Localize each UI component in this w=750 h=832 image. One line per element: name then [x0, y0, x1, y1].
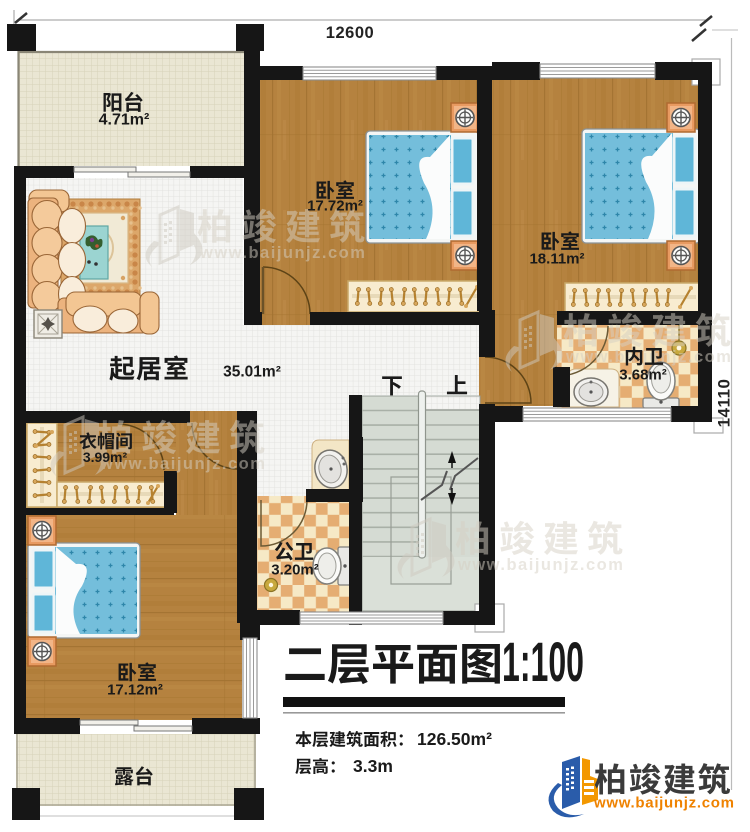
svg-text:4.71m²: 4.71m² — [99, 112, 150, 129]
svg-text:17.72m²: 17.72m² — [307, 198, 363, 215]
svg-text:3.99m²: 3.99m² — [83, 449, 128, 465]
svg-text:126.50m²: 126.50m² — [417, 729, 492, 749]
svg-text:www.baijunjz.com: www.baijunjz.com — [593, 795, 735, 812]
svg-text:www.baijunjz.com: www.baijunjz.com — [457, 556, 624, 574]
svg-text:35.01m²: 35.01m² — [223, 364, 281, 381]
svg-text:3.20m²: 3.20m² — [271, 562, 319, 579]
svg-text:1:100: 1:100 — [502, 630, 584, 693]
svg-text:17.12m²: 17.12m² — [107, 682, 163, 699]
svg-text:18.11m²: 18.11m² — [529, 251, 584, 268]
svg-text:14110: 14110 — [715, 379, 734, 428]
svg-text:3.68m²: 3.68m² — [619, 367, 667, 384]
svg-text:12600: 12600 — [326, 24, 374, 42]
svg-text:3.3m: 3.3m — [353, 756, 393, 776]
svg-text:www.baijunjz.com: www.baijunjz.com — [199, 244, 366, 262]
